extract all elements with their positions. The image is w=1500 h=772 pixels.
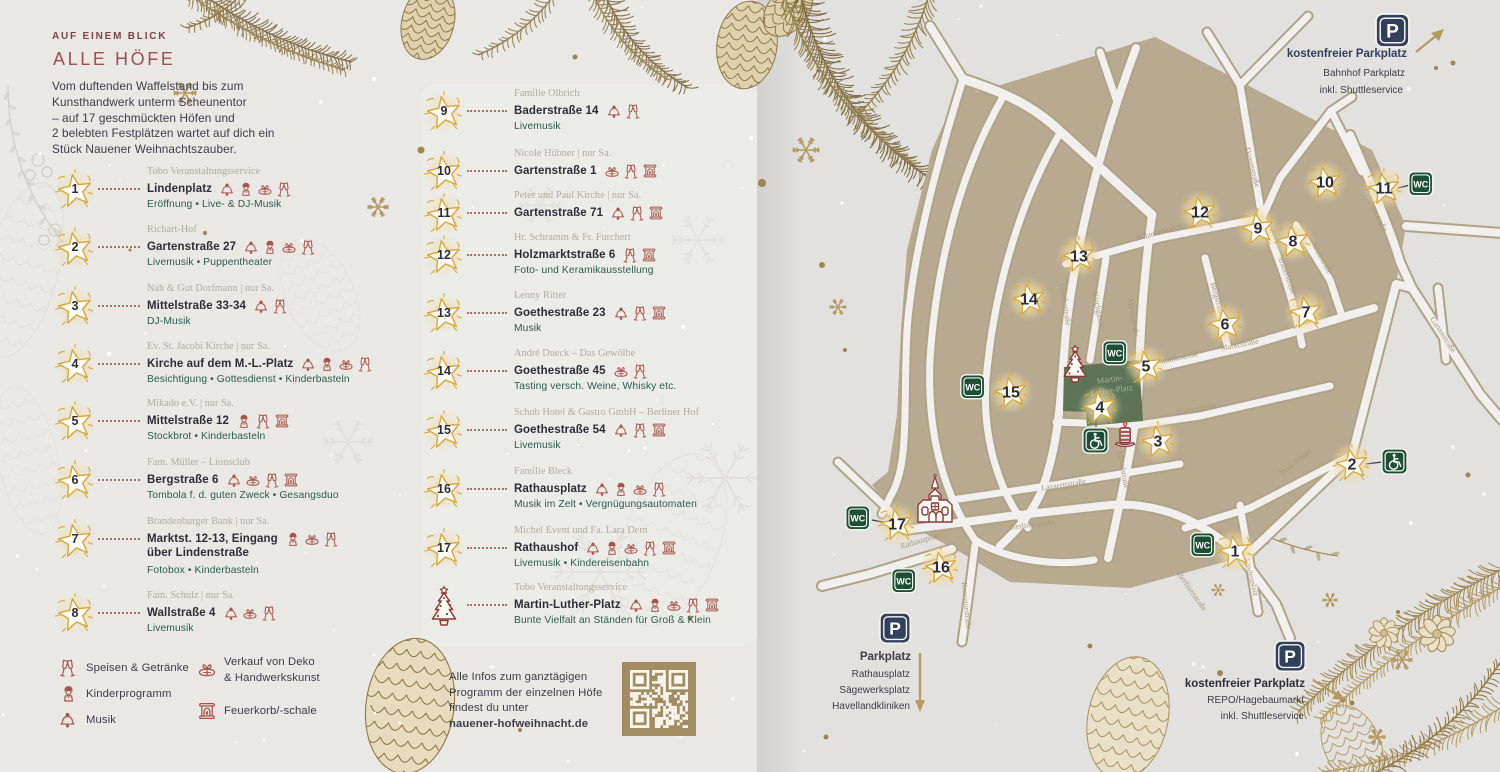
svg-text:inkl. Shuttleservice: inkl. Shuttleservice — [1320, 85, 1404, 96]
svg-text:Bahnhof Parkplatz: Bahnhof Parkplatz — [1323, 68, 1405, 79]
svg-text:15: 15 — [1002, 385, 1020, 402]
svg-text:Parkplatz: Parkplatz — [860, 651, 911, 663]
svg-text:13: 13 — [1070, 249, 1088, 266]
svg-text:9: 9 — [1254, 221, 1263, 238]
svg-text:10: 10 — [1316, 175, 1334, 192]
svg-text:8: 8 — [1289, 234, 1298, 251]
svg-text:14: 14 — [1020, 292, 1038, 309]
svg-text:inkl. Shuttleservice: inkl. Shuttleservice — [1221, 711, 1305, 722]
svg-text:4: 4 — [1096, 400, 1105, 417]
svg-text:7: 7 — [1302, 305, 1311, 322]
svg-text:Rathausplatz: Rathausplatz — [852, 669, 910, 680]
svg-text:2: 2 — [1348, 457, 1357, 474]
svg-text:kostenfreier Parkplatz: kostenfreier Parkplatz — [1185, 678, 1305, 690]
svg-text:6: 6 — [1221, 317, 1230, 334]
svg-text:5: 5 — [1142, 359, 1151, 376]
svg-text:kostenfreier Parkplatz: kostenfreier Parkplatz — [1287, 48, 1407, 60]
svg-text:1: 1 — [1231, 544, 1240, 561]
svg-text:17: 17 — [888, 517, 906, 534]
svg-text:16: 16 — [932, 560, 950, 577]
svg-text:Berlinerstraße: Berlinerstraße — [1175, 570, 1209, 613]
svg-text:Havellandkliniken: Havellandkliniken — [832, 701, 910, 712]
svg-text:REPO/Hagebaumarkt: REPO/Hagebaumarkt — [1207, 695, 1304, 706]
svg-text:3: 3 — [1154, 434, 1163, 451]
svg-text:Sägewerksplatz: Sägewerksplatz — [839, 685, 910, 696]
svg-text:11: 11 — [1376, 181, 1393, 198]
svg-text:12: 12 — [1191, 205, 1209, 222]
